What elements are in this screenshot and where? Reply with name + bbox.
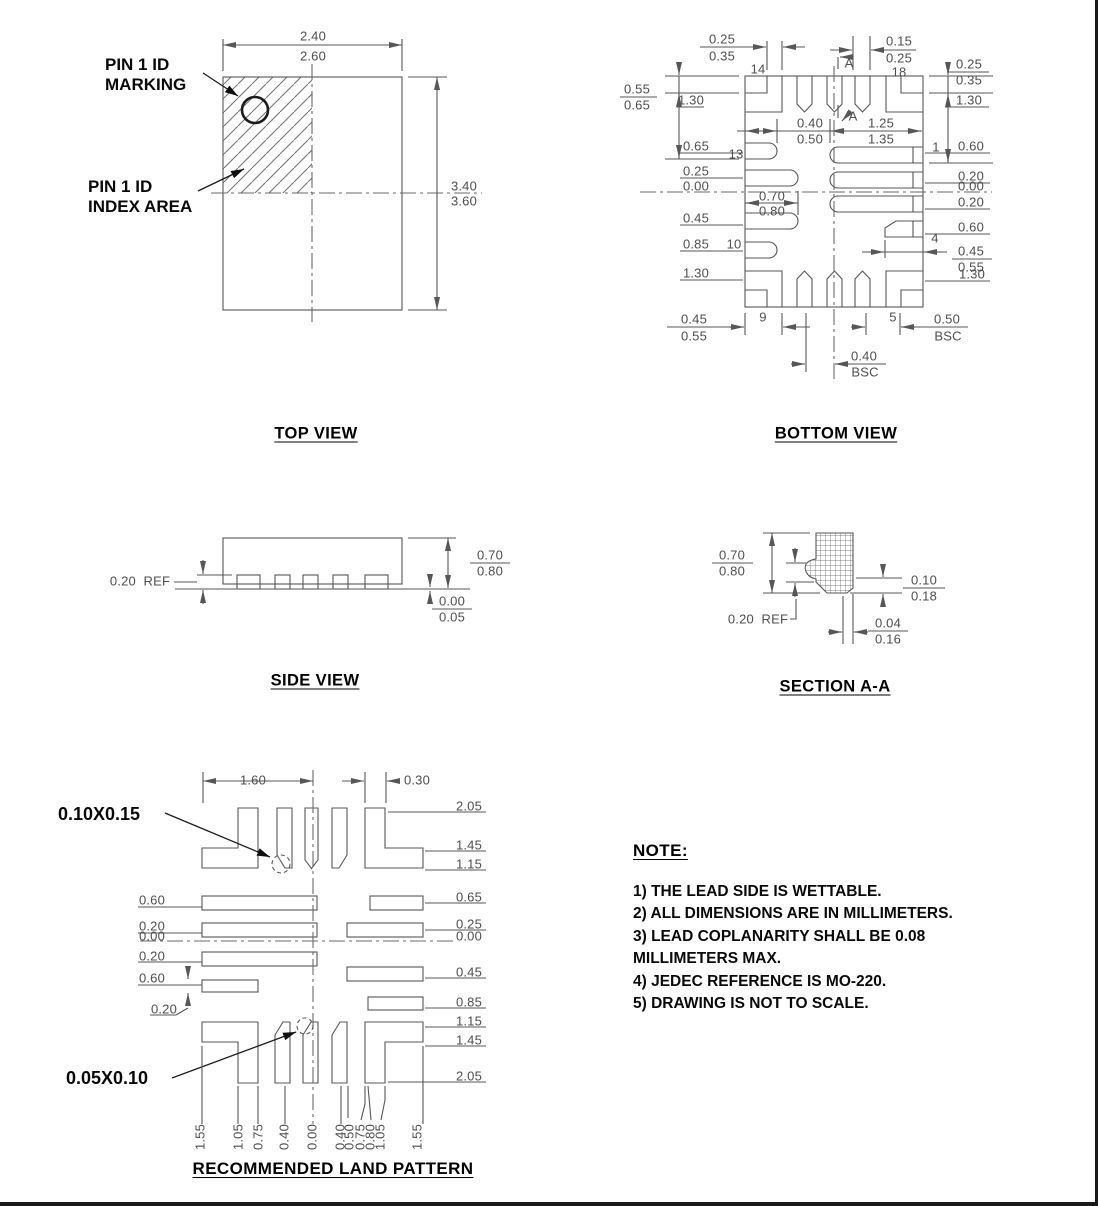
pin1-marking-callout: PIN 1 ID MARKING [105,55,186,95]
note-line: 2) ALL DIMENSIONS ARE IN MILLIMETERS. [633,903,1083,925]
top-view-title: TOP VIEW [274,425,357,444]
dim-label: 0.60 [139,971,165,986]
dim-label: 0.00 [456,929,482,944]
dim-label: 0.85 [456,995,482,1010]
dim-label: 0.00 [139,929,165,944]
dim-label: 0.30 [404,773,430,788]
dim-label: 1.55 [410,1124,425,1150]
pin1-marking-line2: MARKING [105,75,186,95]
dim-label: 0.40 [277,1124,292,1150]
bottom-view-title: BOTTOM VIEW [775,425,897,444]
land-pattern-title: RECOMMENDED LAND PATTERN [193,1159,474,1179]
dim-label: 0.00 [305,1124,320,1150]
note-block: NOTE: 1) THE LEAD SIDE IS WETTABLE.2) AL… [633,841,1083,1015]
dim-label: 2.05 [456,1069,482,1084]
dim-label: 0.65 [456,890,482,905]
dim-label: 0.75 [251,1124,266,1150]
pin1-marking-line1: PIN 1 ID [105,55,186,75]
note-heading: NOTE: [633,841,1083,861]
dim-label: 1.15 [456,857,482,872]
dim-label: 0.45 [456,965,482,980]
note-line: 3) LEAD COPLANARITY SHALL BE 0.08 [633,926,1083,948]
land-chamfer-top-callout: 0.10X0.15 [58,804,140,824]
dim-label: 1.55 [193,1124,208,1150]
dim-label: 0.20 [151,1002,177,1017]
dim-label: 1.60 [240,773,266,788]
dim-label: 1.15 [456,1014,482,1029]
pin1-index-callout: PIN 1 ID INDEX AREA [88,177,192,217]
section-aa-title: SECTION A-A [779,678,890,697]
dim-label: 2.05 [456,799,482,814]
note-line: 5) DRAWING IS NOT TO SCALE. [633,993,1083,1015]
note-line: 4) JEDEC REFERENCE IS MO-220. [633,971,1083,993]
dim-label: 1.45 [456,838,482,853]
pin1-index-line1: PIN 1 ID [88,177,192,197]
drawing-page: 2.402.603.403.60 0.250.350.150.251418AA0… [0,0,1098,1206]
dim-label: 1.05 [373,1124,388,1150]
pin1-index-line2: INDEX AREA [88,197,192,217]
dim-label: 0.60 [139,893,165,908]
dim-label: 0.20 [139,949,165,964]
note-lines: 1) THE LEAD SIDE IS WETTABLE.2) ALL DIME… [633,881,1083,1015]
dim-label: 1.05 [231,1124,246,1150]
note-line: 1) THE LEAD SIDE IS WETTABLE. [633,881,1083,903]
dim-label: 1.45 [456,1033,482,1048]
note-line: MILLIMETERS MAX. [633,948,1083,970]
side-view-title: SIDE VIEW [271,672,360,691]
land-chamfer-bottom-callout: 0.05X0.10 [66,1068,148,1088]
